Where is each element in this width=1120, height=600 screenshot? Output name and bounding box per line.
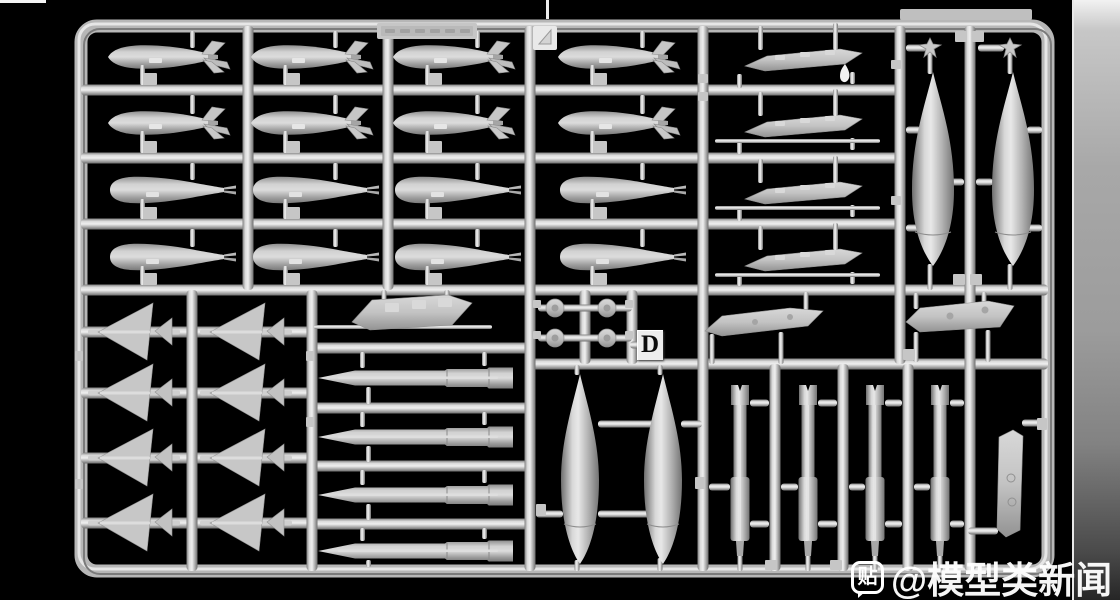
drop-tank-half (561, 374, 599, 564)
slick-bomb (110, 163, 236, 219)
nameplate (900, 9, 1032, 20)
adapter-rack (314, 295, 492, 330)
finned-bomb (251, 31, 373, 85)
launch-rail (731, 385, 750, 556)
finned-bomb (558, 95, 680, 153)
slick-bomb (395, 163, 521, 219)
tail-fin-assembly (200, 364, 292, 421)
slick-bomb (560, 163, 686, 219)
rocket-missile (318, 352, 513, 404)
tail-fin-assembly (200, 494, 292, 551)
wheel-disc (598, 299, 616, 317)
pylon-rack (715, 223, 880, 286)
slick-bomb (395, 229, 521, 285)
tail-fin-assembly (88, 303, 180, 360)
launch-rail (799, 385, 818, 556)
finned-bomb (108, 31, 230, 85)
slick-bomb (253, 229, 379, 285)
watermark: 贴 @模型类新闻 (851, 550, 1112, 600)
drop-tank-half (992, 72, 1034, 266)
sprue-letter-tab: D (637, 330, 663, 360)
tail-fin-assembly (88, 494, 180, 551)
wing-panel (906, 301, 1014, 332)
sprue-frame-drawing (0, 0, 1120, 600)
tail-fin-assembly (200, 303, 292, 360)
rocket-missile (318, 528, 513, 567)
finned-bomb (393, 31, 515, 85)
slick-bomb (110, 229, 236, 285)
tail-fin-assembly (88, 364, 180, 421)
rocket-missile (318, 470, 513, 520)
wheel-disc (546, 329, 564, 347)
watermark-text: @模型类新闻 (891, 550, 1112, 600)
launch-rail (866, 385, 885, 556)
slick-bomb (560, 229, 686, 285)
wheel-disc (598, 329, 616, 347)
finned-bomb (108, 95, 230, 153)
finned-bomb (251, 95, 373, 153)
tieba-badge-icon: 贴 (851, 561, 884, 594)
wing-panel (705, 308, 823, 336)
drop-tank-half (912, 72, 954, 266)
tail-fin-assembly (88, 429, 180, 486)
mold-mark-tab (533, 26, 557, 50)
rocket-missile (318, 412, 513, 462)
vertical-fin-panel (997, 430, 1023, 537)
wheel-disc (546, 299, 564, 317)
launch-rail (931, 385, 950, 556)
pylon-rack (715, 156, 880, 221)
finned-bomb (558, 31, 680, 85)
drop-tank-half (644, 374, 682, 564)
drip-highlight (840, 64, 849, 82)
pylon-rack (715, 89, 880, 154)
finned-bomb (393, 95, 515, 153)
slick-bomb (253, 163, 379, 219)
tail-fin-assembly (200, 429, 292, 486)
nameplate (377, 23, 477, 39)
model-sprue-photo: D 贴 @模型类新闻 (0, 0, 1120, 600)
